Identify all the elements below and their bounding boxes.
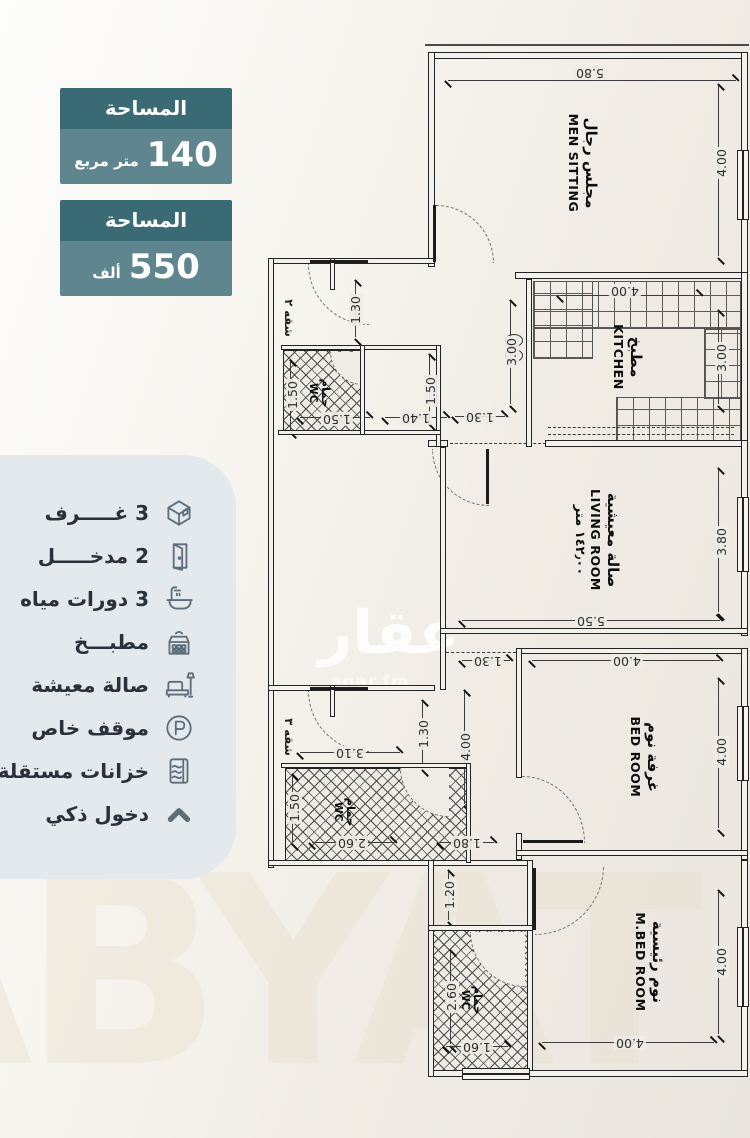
dim-label: 1.30 (472, 654, 504, 668)
feature-entrances-label: 2 مدخـــــل (38, 544, 149, 568)
listing-image: ABYAT عقار aqar.fm المساحة 140 متر مربع … (0, 0, 750, 1138)
dim-label: 1.60 (461, 1040, 493, 1054)
door-arc (436, 205, 494, 263)
feature-kitchen: مطبـــخ (0, 620, 236, 663)
apartment-label-top: شقه ٢ (282, 299, 296, 337)
dim-label: 3.80 (715, 526, 729, 558)
feature-bathrooms: 3 دورات مياه (0, 577, 236, 620)
area-badge-body: 140 متر مربع (60, 129, 232, 184)
room-area: ١٤٢٫٠٠ متر (572, 505, 587, 576)
door-arc (308, 691, 369, 752)
room-ar: حمام (471, 986, 485, 1015)
dim-label: 2.60 (445, 981, 459, 1013)
room-en: WC (459, 990, 471, 1010)
features-panel: 3 غـــــرف 2 مدخـــــل 3 دورات مياه مطبـ… (0, 455, 236, 879)
dim-label: 1.80 (451, 836, 483, 850)
room-ar: حمام (319, 379, 333, 408)
price-value: 550 (129, 250, 200, 284)
dim-label: 4.00 (715, 736, 729, 768)
dim-label: 1.30 (417, 718, 431, 750)
dim-label: 5.80 (574, 66, 606, 80)
room-label-kitchen: مطبخ KITCHEN (611, 324, 645, 390)
room-en: WC (307, 383, 319, 403)
window (462, 1068, 530, 1080)
water-tank-icon (162, 754, 196, 788)
door-icon (162, 539, 196, 573)
room-en: M.BED ROOM (633, 912, 648, 1011)
wall (515, 272, 748, 279)
dim-label: 3.10 (334, 746, 366, 760)
feature-living: صالة معيشة (0, 663, 236, 706)
feature-tanks-label: خزانات مستقلة (0, 759, 149, 783)
wall (281, 763, 471, 768)
dim-label: 4.00 (609, 284, 641, 298)
feature-bathrooms-label: 3 دورات مياه (20, 587, 149, 611)
dim-label: 4.00 (715, 946, 729, 978)
wall (268, 860, 533, 866)
opening-dashes (548, 427, 734, 428)
room-ar: حمام (344, 798, 358, 827)
dim-label: 1.50 (321, 412, 353, 426)
wall (440, 628, 748, 634)
price-badge-body: 550 ألف (60, 241, 232, 296)
opening-dashes (446, 652, 516, 653)
dim-label: 1.50 (288, 792, 302, 824)
room-label-men-sitting: مجلس رجال MEN SITTING (566, 114, 600, 213)
dim-label: 1.30 (464, 410, 496, 424)
feature-kitchen-label: مطبـــخ (74, 630, 149, 654)
plan-outer-edge (425, 44, 749, 46)
feature-parking: موقف خاص (0, 706, 236, 749)
dim-label: 4.00 (715, 147, 729, 179)
kitchen-counter (616, 397, 741, 443)
door-leaf (310, 260, 368, 263)
area-value: 140 (147, 138, 218, 172)
apartment-label-mid: شقه ٣ (282, 718, 296, 756)
dim-label: 1.50 (424, 375, 438, 407)
wall (440, 447, 446, 690)
door-arc (522, 776, 585, 843)
feature-rooms: 3 غـــــرف (0, 491, 236, 534)
dim-label: 1.30 (349, 294, 363, 326)
door-leaf (523, 840, 583, 843)
window (737, 706, 749, 781)
wall (545, 440, 748, 447)
aqar-logo-watermark: عقار (318, 598, 459, 668)
room-label-wc-bottom: حمام WC (459, 986, 485, 1015)
wall (428, 925, 533, 931)
bathtub-icon (162, 582, 196, 616)
kitchen-counter (533, 281, 593, 359)
dim-label: 2.60 (336, 836, 368, 850)
feature-entrances: 2 مدخـــــل (0, 534, 236, 577)
room-ar: غرفة نوم (644, 722, 662, 792)
room-label-master-bedroom: نوم رئيسية M.BED ROOM (633, 912, 667, 1011)
feature-parking-label: موقف خاص (31, 716, 149, 740)
room-ar: صالة معيشية (604, 493, 622, 587)
rooms-cube-icon (162, 496, 196, 530)
window (737, 927, 749, 1007)
room-en: BED ROOM (628, 717, 643, 798)
door-leaf (433, 205, 436, 262)
price-unit: ألف (92, 264, 121, 282)
room-ar: مطبخ (627, 337, 645, 378)
price-badge-header: المساحة (60, 200, 232, 241)
window (737, 150, 749, 220)
sofa-lamp-icon (162, 668, 196, 702)
dim-label: 5.50 (575, 614, 607, 628)
feature-tanks: خزانات مستقلة (0, 749, 236, 792)
dim-label: 1.50 (286, 379, 300, 411)
room-en: LIVING ROOM (588, 489, 603, 591)
room-ar: مجلس رجال (582, 118, 600, 209)
smart-entry-icon (162, 797, 196, 831)
feature-smart-entry: دخول ذكي (0, 792, 236, 835)
room-en: WC (332, 802, 344, 822)
parking-icon (162, 711, 196, 745)
dim-label: 4.00 (614, 1036, 646, 1050)
feature-smart-entry-label: دخول ذكي (45, 802, 149, 826)
feature-rooms-label: 3 غـــــرف (45, 501, 149, 525)
wall (516, 648, 522, 778)
wall (428, 860, 434, 1077)
wall (741, 272, 748, 447)
opening-dashes (548, 434, 734, 435)
kitchen-stove-icon (162, 625, 196, 659)
room-label-bedroom: غرفة نوم BED ROOM (628, 717, 662, 798)
wall (428, 52, 748, 59)
wall (516, 850, 748, 856)
dim-label: 3.00 (505, 336, 519, 368)
feature-living-label: صالة معيشة (31, 673, 149, 697)
room-en: MEN SITTING (566, 114, 581, 213)
door-leaf (486, 449, 489, 504)
room-label-wc-mid: حمام WC (332, 798, 358, 827)
area-unit: متر مربع (74, 152, 138, 170)
door-leaf (310, 687, 368, 690)
wall (360, 345, 365, 435)
door-leaf (533, 868, 536, 930)
price-badge: المساحة 550 ألف (60, 200, 232, 296)
wall (526, 279, 532, 447)
room-label-wc-top: حمام WC (307, 379, 333, 408)
dim-label: 4.00 (611, 654, 643, 668)
wall (268, 258, 274, 868)
dim-label: 1.20 (443, 879, 457, 911)
window (737, 497, 749, 572)
area-badge-header: المساحة (60, 88, 232, 129)
room-label-living: صالة معيشية LIVING ROOM ١٤٢٫٠٠ متر (572, 489, 622, 591)
dim-label: 3.00 (715, 342, 729, 374)
area-badge: المساحة 140 متر مربع (60, 88, 232, 184)
dim-label: 1.40 (400, 411, 432, 425)
dim-label: 4.00 (459, 731, 473, 763)
room-en: KITCHEN (611, 324, 626, 390)
room-ar: نوم رئيسية (649, 921, 667, 1003)
